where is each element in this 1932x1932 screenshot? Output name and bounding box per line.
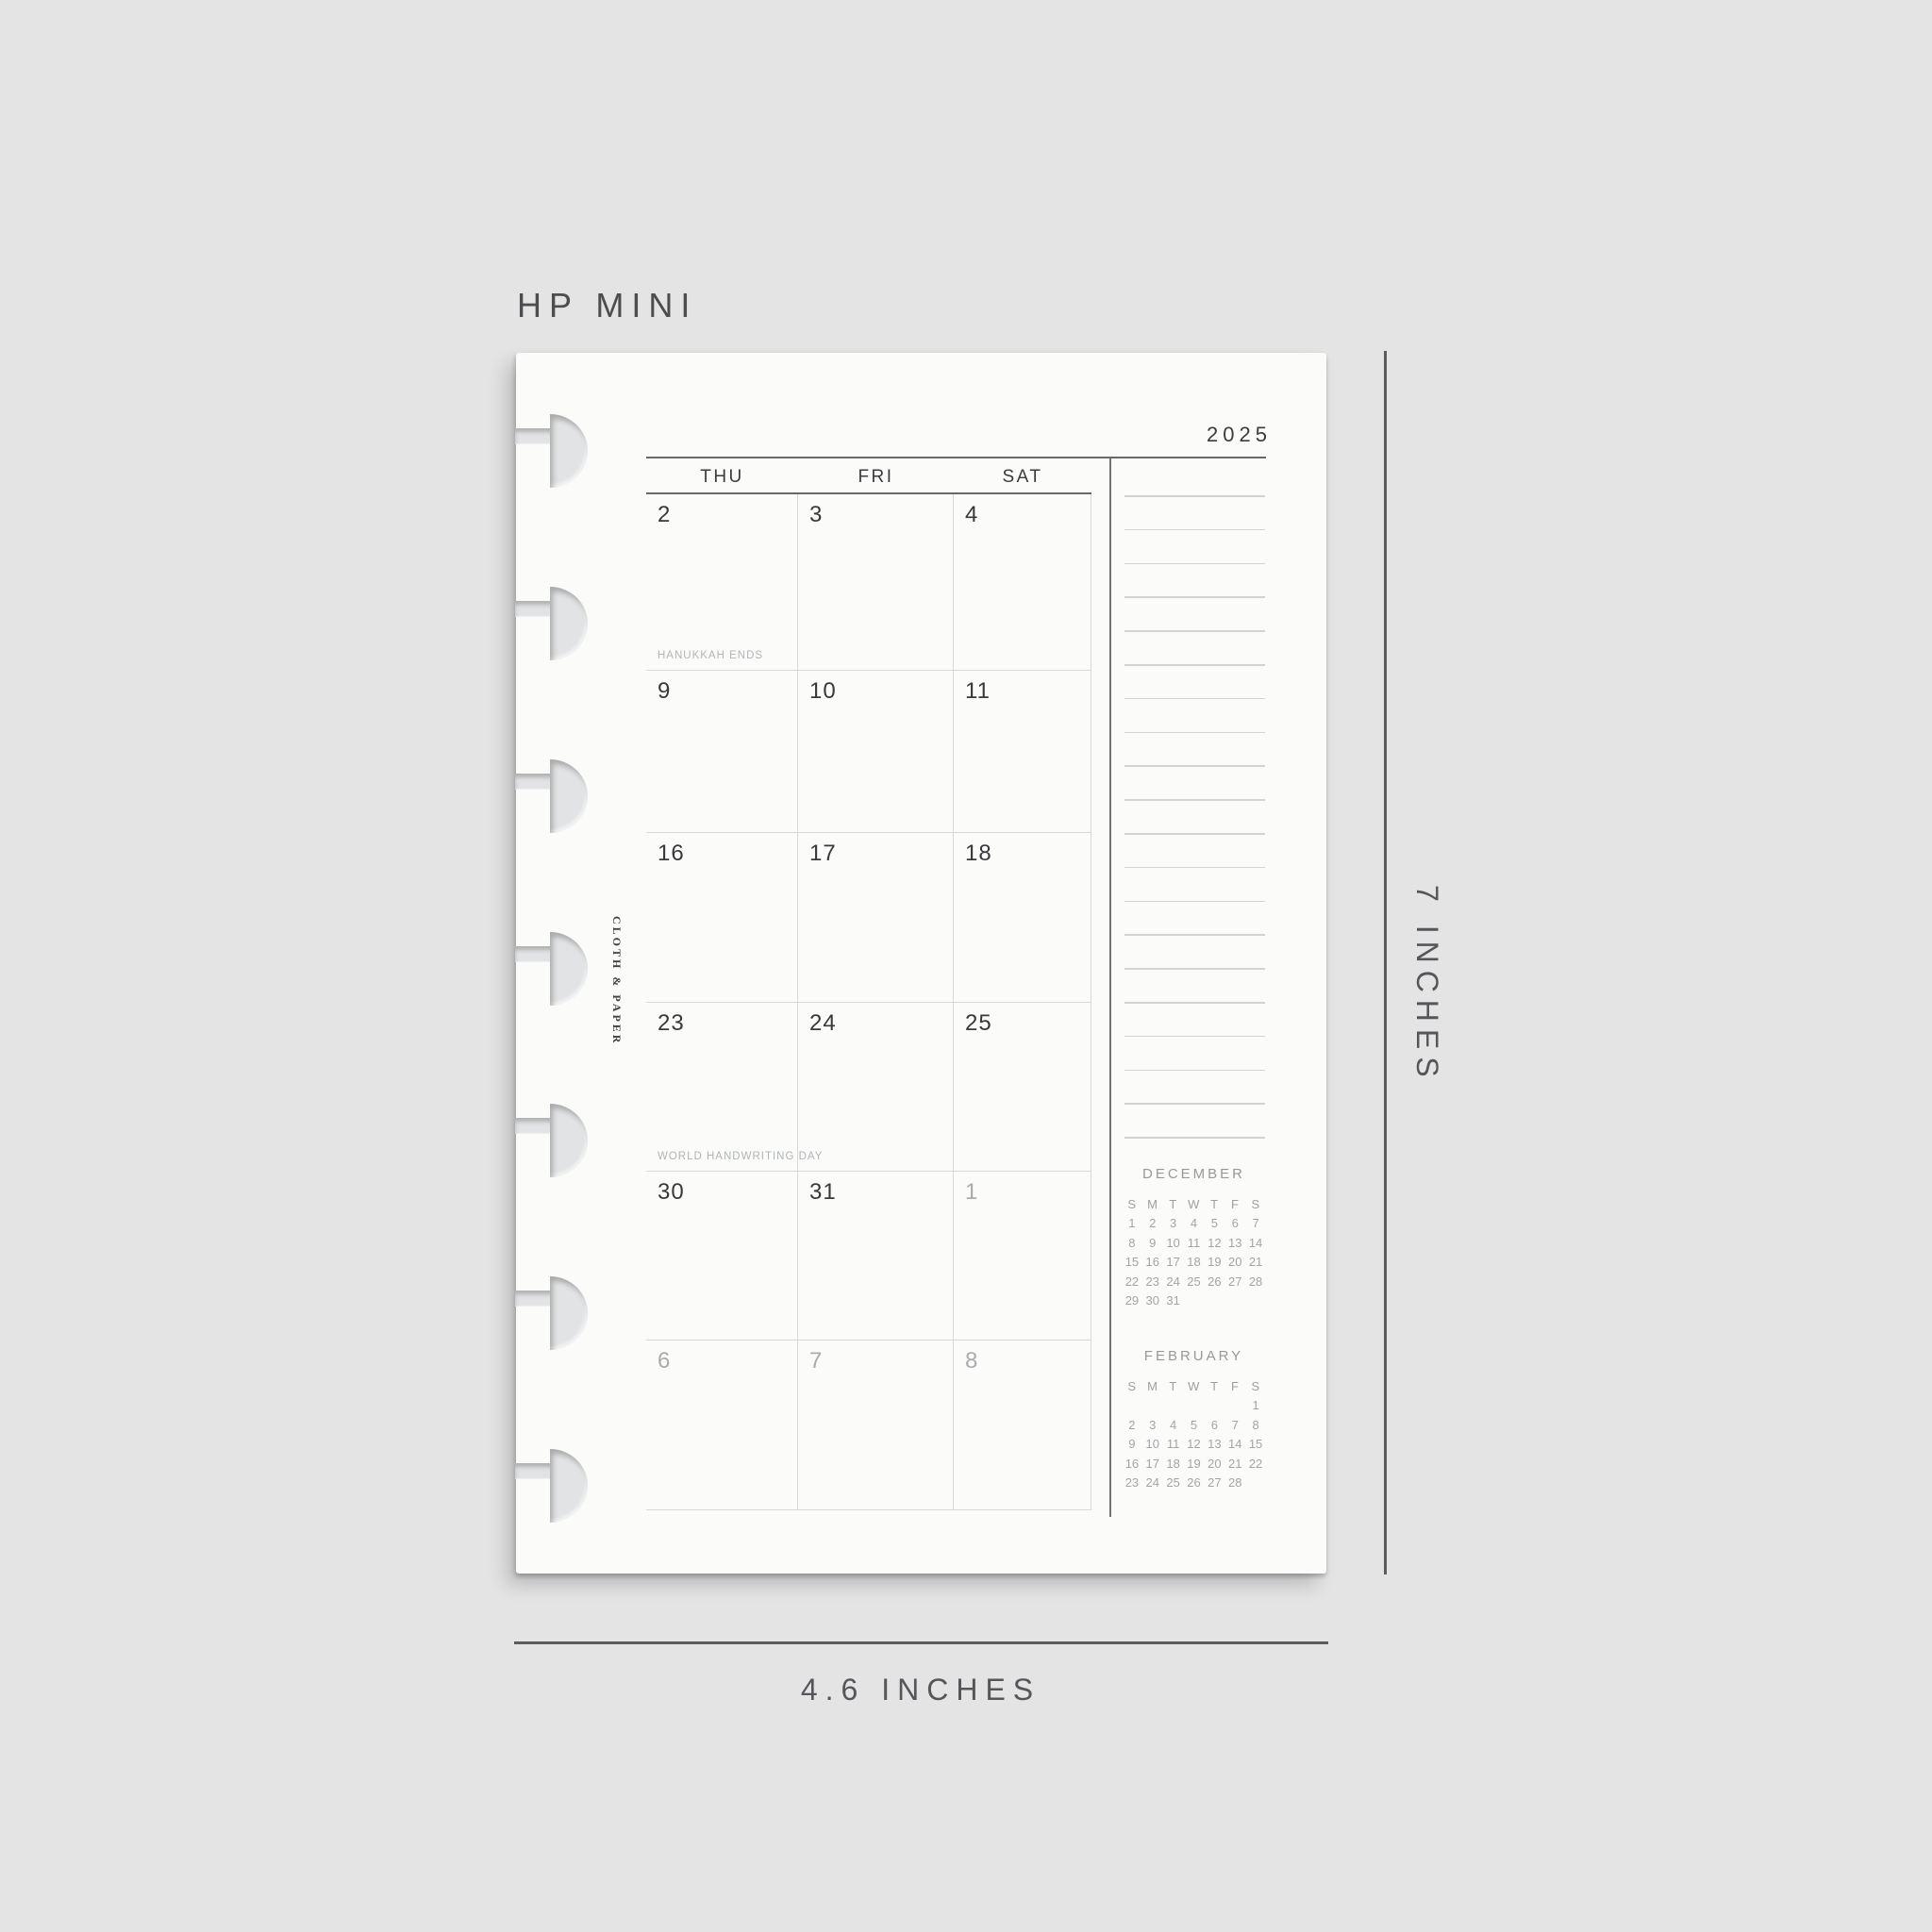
mini-calendar-february: FEBRUARY SMTWTFS123456789101112131415161… xyxy=(1122,1348,1266,1492)
mini-cal-day: 16 xyxy=(1142,1255,1163,1269)
mini-cal-day: 17 xyxy=(1142,1457,1163,1471)
monthly-calendar-grid: 2HANUKKAH ENDS349101116171823WORLD HANDW… xyxy=(646,494,1091,1510)
mini-cal-day: 2 xyxy=(1122,1418,1142,1432)
mini-cal-day: 28 xyxy=(1245,1274,1266,1289)
mini-cal-day: 14 xyxy=(1245,1236,1266,1250)
mini-cal-day: 19 xyxy=(1184,1457,1205,1471)
mini-cal-weekday: T xyxy=(1163,1197,1184,1211)
calendar-day-cell: 2HANUKKAH ENDS xyxy=(646,494,798,671)
disc-cutout xyxy=(515,414,591,488)
mini-cal-day: 31 xyxy=(1163,1293,1184,1307)
mini-cal-day: 13 xyxy=(1224,1236,1245,1250)
mini-cal-day: 14 xyxy=(1224,1437,1245,1451)
mini-cal-weekday: M xyxy=(1142,1379,1163,1393)
mini-cal-day: 25 xyxy=(1163,1475,1184,1490)
calendar-day-cell: 11 xyxy=(954,671,1091,833)
disc-hole xyxy=(550,1276,588,1350)
ruled-line xyxy=(1124,529,1265,531)
disc-cutout xyxy=(515,932,591,1006)
disc-cutout xyxy=(515,1276,591,1350)
ruled-line xyxy=(1124,664,1265,666)
calendar-day-cell: 23WORLD HANDWRITING DAY xyxy=(646,1003,798,1172)
day-number: 31 xyxy=(798,1172,953,1206)
mini-cal-day: 1 xyxy=(1122,1216,1142,1230)
disc-hole xyxy=(550,587,588,660)
weekday-header-fri: FRI xyxy=(798,463,954,488)
mini-calendar-title: DECEMBER xyxy=(1122,1166,1266,1185)
mini-cal-day: 15 xyxy=(1245,1437,1266,1451)
day-number: 18 xyxy=(954,833,1091,867)
planner-insert-page: CLOTH & PAPER 2025 THU FRI SAT 2HANUKKAH… xyxy=(516,353,1326,1574)
ruled-line xyxy=(1124,867,1265,869)
mini-cal-day: 17 xyxy=(1163,1255,1184,1269)
calendar-day-cell: 31 xyxy=(798,1172,954,1341)
mini-cal-day: 15 xyxy=(1122,1255,1142,1269)
mini-cal-day: 25 xyxy=(1184,1274,1205,1289)
mini-cal-day: 11 xyxy=(1163,1437,1184,1451)
mini-cal-day: 12 xyxy=(1204,1236,1224,1250)
ruled-line xyxy=(1124,1002,1265,1004)
ruled-line xyxy=(1124,934,1265,936)
disc-cutout xyxy=(515,1449,591,1523)
calendar-day-cell: 25 xyxy=(954,1003,1091,1172)
mini-cal-day: 20 xyxy=(1224,1255,1245,1269)
disc-hole xyxy=(550,932,588,1006)
mini-cal-day: 30 xyxy=(1142,1293,1163,1307)
mini-cal-day: 1 xyxy=(1245,1398,1266,1412)
day-number: 23 xyxy=(646,1003,797,1037)
disc-hole xyxy=(550,414,588,488)
disc-cutout xyxy=(515,587,591,660)
calendar-day-cell: 7 xyxy=(798,1341,954,1510)
mini-cal-day: 6 xyxy=(1204,1418,1224,1432)
mini-cal-day: 8 xyxy=(1245,1418,1266,1432)
notes-ruled-area xyxy=(1124,460,1265,1158)
mini-cal-day: 22 xyxy=(1122,1274,1142,1289)
ruled-line xyxy=(1124,495,1265,497)
calendar-day-cell: 6 xyxy=(646,1341,798,1510)
year-label: 2025 xyxy=(1207,423,1272,447)
calendar-day-cell: 17 xyxy=(798,833,954,1003)
calendar-day-cell: 18 xyxy=(954,833,1091,1003)
ruled-line xyxy=(1124,698,1265,700)
mini-cal-weekday: S xyxy=(1122,1379,1142,1393)
ruled-line xyxy=(1124,596,1265,598)
day-number: 9 xyxy=(646,671,797,705)
mini-cal-day: 19 xyxy=(1204,1255,1224,1269)
ruled-line xyxy=(1124,1036,1265,1038)
day-number: 1 xyxy=(954,1172,1091,1206)
disc-cutout xyxy=(515,1104,591,1177)
mini-cal-weekday: W xyxy=(1184,1379,1205,1393)
mini-cal-day: 5 xyxy=(1184,1418,1205,1432)
calendar-day-cell: 9 xyxy=(646,671,798,833)
disc-hole xyxy=(550,1449,588,1523)
calendar-day-cell: 3 xyxy=(798,494,954,671)
mini-cal-day: 22 xyxy=(1245,1457,1266,1471)
ruled-line xyxy=(1124,1070,1265,1072)
width-measure-line xyxy=(514,1641,1328,1644)
disc-hole xyxy=(550,759,588,833)
mini-cal-day: 18 xyxy=(1163,1457,1184,1471)
day-number: 30 xyxy=(646,1172,797,1206)
mini-cal-day: 9 xyxy=(1142,1236,1163,1250)
mini-calendar-grid: SMTWTFS123456789101112131415161718192021… xyxy=(1122,1194,1266,1310)
day-number: 3 xyxy=(798,494,953,528)
day-number: 25 xyxy=(954,1003,1091,1037)
mini-cal-weekday: W xyxy=(1184,1197,1205,1211)
mini-cal-day: 27 xyxy=(1204,1475,1224,1490)
calendar-day-cell: 30 xyxy=(646,1172,798,1341)
mini-cal-day: 5 xyxy=(1204,1216,1224,1230)
sidebar-divider-rule xyxy=(1109,458,1111,1517)
mini-cal-day: 8 xyxy=(1122,1236,1142,1250)
mini-cal-day: 23 xyxy=(1122,1475,1142,1490)
day-number: 2 xyxy=(646,494,797,528)
mini-cal-day: 16 xyxy=(1122,1457,1142,1471)
calendar-day-cell: 4 xyxy=(954,494,1091,671)
mini-cal-day: 7 xyxy=(1245,1216,1266,1230)
day-number: 17 xyxy=(798,833,953,867)
mini-cal-day: 3 xyxy=(1163,1216,1184,1230)
disc-cutout xyxy=(515,759,591,833)
ruled-line xyxy=(1124,732,1265,734)
mini-cal-day: 29 xyxy=(1122,1293,1142,1307)
mini-cal-day: 2 xyxy=(1142,1216,1163,1230)
mini-cal-weekday: S xyxy=(1122,1197,1142,1211)
mini-cal-day: 4 xyxy=(1184,1216,1205,1230)
mini-cal-day: 24 xyxy=(1163,1274,1184,1289)
ruled-line xyxy=(1124,901,1265,903)
mini-cal-day: 12 xyxy=(1184,1437,1205,1451)
day-number: 10 xyxy=(798,671,953,705)
ruled-line xyxy=(1124,563,1265,565)
size-name-label: HP MINI xyxy=(517,286,697,325)
event-label: HANUKKAH ENDS xyxy=(658,650,763,661)
day-number: 7 xyxy=(798,1341,953,1374)
disc-hole xyxy=(550,1104,588,1177)
mini-cal-day: 26 xyxy=(1204,1274,1224,1289)
ruled-line xyxy=(1124,833,1265,835)
weekday-header-sat: SAT xyxy=(954,463,1091,488)
mini-cal-weekday: T xyxy=(1204,1379,1224,1393)
mini-cal-weekday: M xyxy=(1142,1197,1163,1211)
mini-cal-weekday: F xyxy=(1224,1197,1245,1211)
mini-cal-weekday: S xyxy=(1245,1197,1266,1211)
weekday-header-row: THU FRI SAT xyxy=(646,458,1091,494)
day-number: 24 xyxy=(798,1003,953,1037)
product-mockup: HP MINI CLOTH & PAPER 2025 THU FRI SAT 2… xyxy=(0,0,1932,1932)
mini-cal-day: 27 xyxy=(1224,1274,1245,1289)
mini-cal-day: 4 xyxy=(1163,1418,1184,1432)
brand-vertical-text: CLOTH & PAPER xyxy=(609,916,624,1025)
mini-cal-day: 18 xyxy=(1184,1255,1205,1269)
mini-cal-day: 10 xyxy=(1163,1236,1184,1250)
mini-cal-day: 21 xyxy=(1245,1255,1266,1269)
day-number: 16 xyxy=(646,833,797,867)
mini-cal-day: 3 xyxy=(1142,1418,1163,1432)
day-number: 4 xyxy=(954,494,1091,528)
mini-cal-day: 20 xyxy=(1204,1457,1224,1471)
mini-cal-day: 7 xyxy=(1224,1418,1245,1432)
mini-cal-day: 11 xyxy=(1184,1236,1205,1250)
mini-calendar-grid: SMTWTFS123456789101112131415161718192021… xyxy=(1122,1376,1266,1492)
ruled-line xyxy=(1124,630,1265,632)
mini-cal-day: 24 xyxy=(1142,1475,1163,1490)
ruled-line xyxy=(1124,765,1265,767)
calendar-day-cell: 16 xyxy=(646,833,798,1003)
day-number: 6 xyxy=(646,1341,797,1374)
mini-cal-day: 26 xyxy=(1184,1475,1205,1490)
day-number: 8 xyxy=(954,1341,1091,1374)
mini-cal-weekday: T xyxy=(1163,1379,1184,1393)
ruled-line xyxy=(1124,1103,1265,1105)
mini-cal-weekday: S xyxy=(1245,1379,1266,1393)
mini-cal-weekday: T xyxy=(1204,1197,1224,1211)
ruled-line xyxy=(1124,968,1265,970)
height-measure-line xyxy=(1384,351,1387,1574)
mini-calendar-title: FEBRUARY xyxy=(1122,1348,1266,1367)
ruled-line xyxy=(1124,799,1265,801)
calendar-day-cell: 10 xyxy=(798,671,954,833)
day-number: 11 xyxy=(954,671,1091,705)
mini-cal-day: 10 xyxy=(1142,1437,1163,1451)
mini-cal-day: 13 xyxy=(1204,1437,1224,1451)
mini-cal-day: 28 xyxy=(1224,1475,1245,1490)
mini-cal-day: 9 xyxy=(1122,1437,1142,1451)
width-measure-label: 4.6 INCHES xyxy=(638,1673,1204,1707)
mini-calendar-december: DECEMBER SMTWTFS123456789101112131415161… xyxy=(1122,1166,1266,1310)
mini-cal-weekday: F xyxy=(1224,1379,1245,1393)
ruled-line xyxy=(1124,1137,1265,1139)
calendar-day-cell: 8 xyxy=(954,1341,1091,1510)
mini-cal-day: 21 xyxy=(1224,1457,1245,1471)
mini-cal-day: 6 xyxy=(1224,1216,1245,1230)
calendar-day-cell: 1 xyxy=(954,1172,1091,1341)
calendar-day-cell: 24 xyxy=(798,1003,954,1172)
weekday-header-thu: THU xyxy=(646,463,798,488)
mini-cal-day: 23 xyxy=(1142,1274,1163,1289)
height-measure-label: 7 INCHES xyxy=(1409,885,1444,1085)
